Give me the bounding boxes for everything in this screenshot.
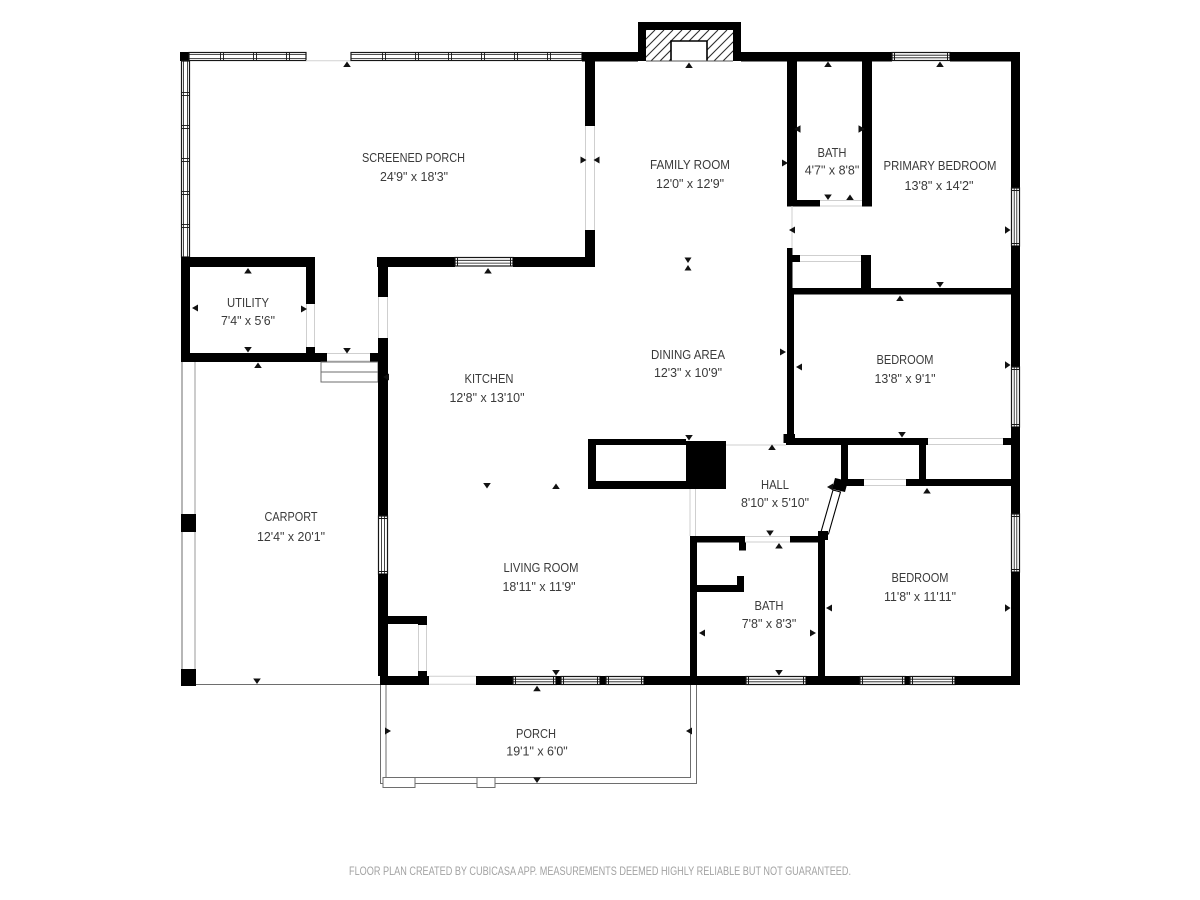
svg-text:12'8" x 13'10": 12'8" x 13'10" [450,390,525,405]
svg-text:BATH: BATH [755,598,784,613]
svg-text:PRIMARY BEDROOM: PRIMARY BEDROOM [884,158,997,173]
svg-text:11'8" x 11'11": 11'8" x 11'11" [884,589,956,604]
svg-text:12'0" x 12'9": 12'0" x 12'9" [656,176,724,191]
svg-text:SCREENED PORCH: SCREENED PORCH [362,150,465,165]
svg-text:18'11" x 11'9": 18'11" x 11'9" [503,579,576,594]
svg-text:CARPORT: CARPORT [265,509,318,524]
svg-text:12'4" x 20'1": 12'4" x 20'1" [257,529,325,544]
svg-text:13'8" x 14'2": 13'8" x 14'2" [905,178,974,193]
svg-text:19'1" x 6'0": 19'1" x 6'0" [506,744,568,759]
svg-text:BEDROOM: BEDROOM [892,570,949,585]
svg-text:13'8" x 9'1": 13'8" x 9'1" [875,371,936,386]
svg-text:LIVING ROOM: LIVING ROOM [504,560,579,575]
svg-text:HALL: HALL [761,477,789,492]
svg-text:7'8" x 8'3": 7'8" x 8'3" [742,616,797,631]
svg-text:BEDROOM: BEDROOM [877,352,934,367]
svg-text:UTILITY: UTILITY [227,295,269,310]
svg-text:FAMILY ROOM: FAMILY ROOM [650,157,730,172]
svg-text:24'9" x 18'3": 24'9" x 18'3" [380,169,448,184]
svg-text:BATH: BATH [818,145,847,160]
svg-text:FLOOR PLAN CREATED BY CUBICASA: FLOOR PLAN CREATED BY CUBICASA APP. MEAS… [349,864,851,878]
svg-text:4'7" x 8'8": 4'7" x 8'8" [805,163,860,178]
svg-text:8'10" x 5'10": 8'10" x 5'10" [741,495,809,510]
svg-text:KITCHEN: KITCHEN [465,371,514,386]
svg-text:DINING AREA: DINING AREA [651,347,725,362]
svg-text:12'3" x 10'9": 12'3" x 10'9" [654,365,722,380]
svg-text:PORCH: PORCH [516,726,556,741]
svg-text:7'4" x 5'6": 7'4" x 5'6" [221,313,275,328]
